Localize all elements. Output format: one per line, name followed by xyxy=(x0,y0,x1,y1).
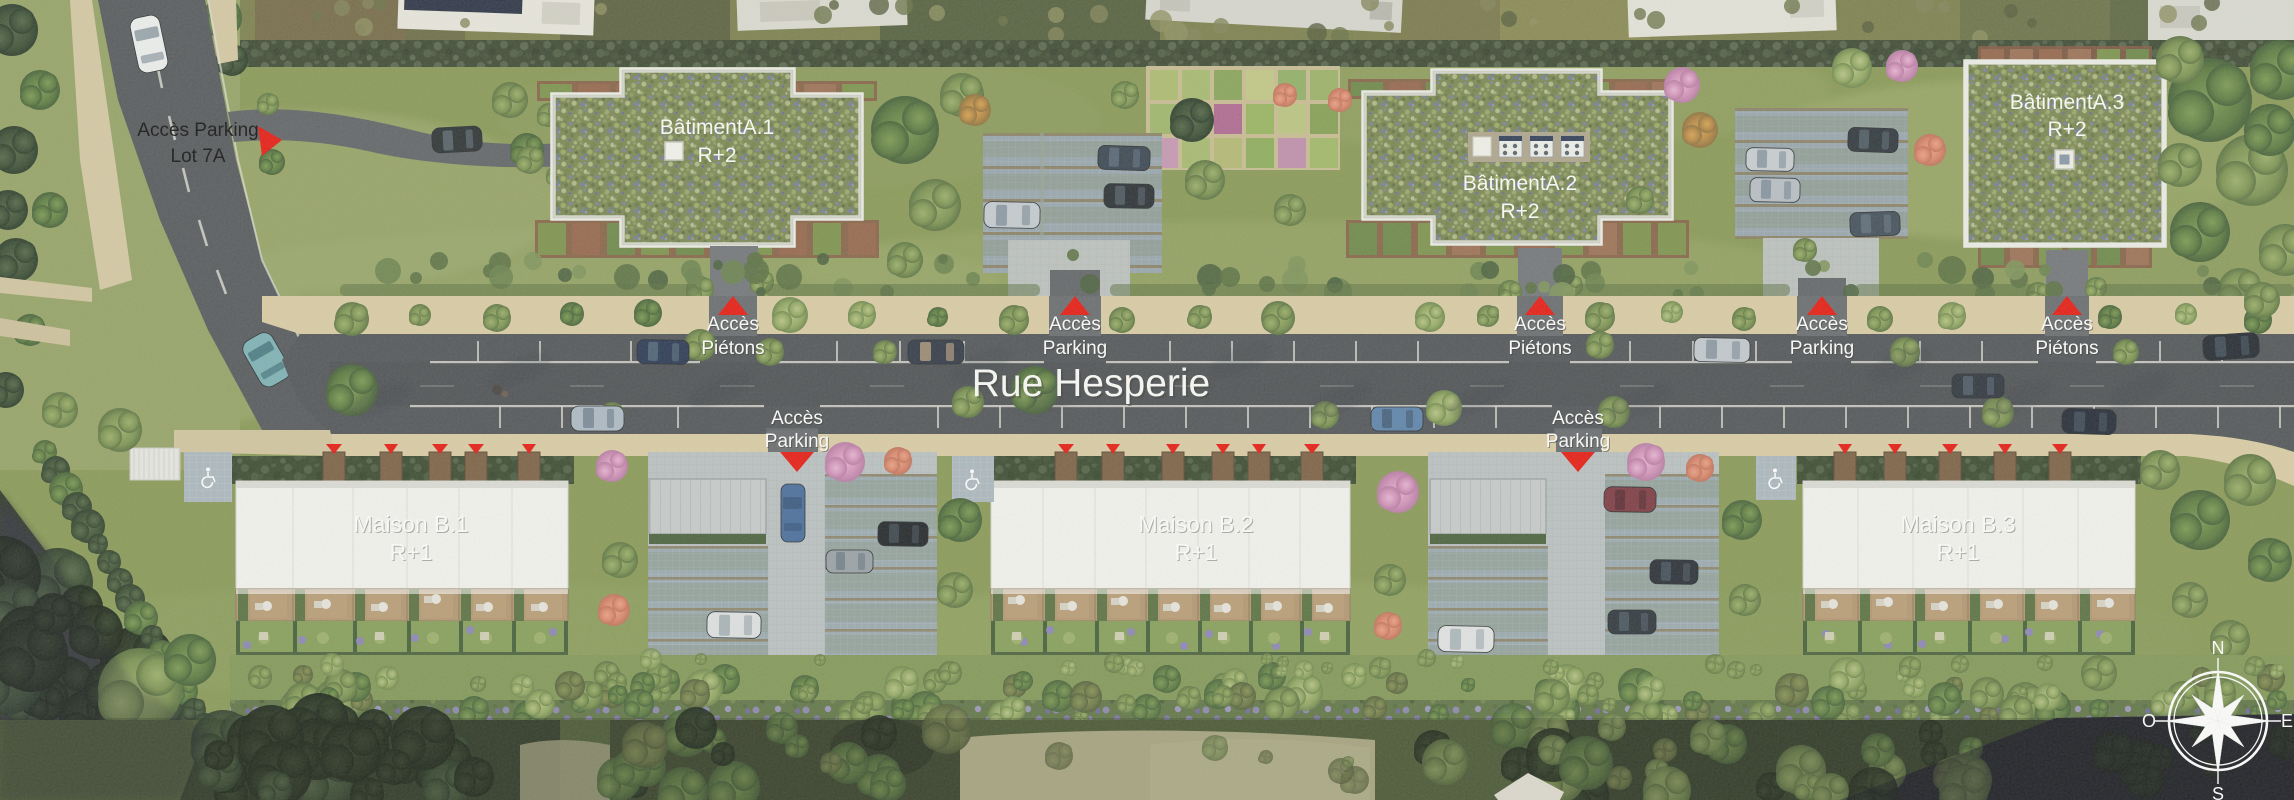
svg-text:Parking: Parking xyxy=(1043,338,1107,359)
svg-text:O: O xyxy=(2142,711,2156,731)
svg-text:Maison B.1: Maison B.1 xyxy=(353,511,468,537)
svg-text:Accès: Accès xyxy=(707,314,759,335)
svg-text:R+2: R+2 xyxy=(2047,118,2086,141)
svg-text:BâtimentA.1: BâtimentA.1 xyxy=(660,116,774,139)
svg-text:R+1: R+1 xyxy=(1175,539,1218,565)
svg-text:Lot 7A: Lot 7A xyxy=(171,146,226,167)
svg-text:Parking: Parking xyxy=(1546,431,1610,452)
svg-text:Piétons: Piétons xyxy=(1508,338,1571,359)
svg-text:Parking: Parking xyxy=(765,431,829,452)
svg-text:Parking: Parking xyxy=(1790,338,1854,359)
svg-text:Piétons: Piétons xyxy=(2035,338,2098,359)
svg-text:R+1: R+1 xyxy=(1937,539,1980,565)
svg-text:Rue Hesperie: Rue Hesperie xyxy=(972,362,1210,405)
svg-text:BâtimentA.2: BâtimentA.2 xyxy=(1463,172,1577,195)
svg-text:R+1: R+1 xyxy=(390,539,433,565)
svg-text:R+2: R+2 xyxy=(1500,200,1539,223)
svg-text:Maison B.3: Maison B.3 xyxy=(1900,511,2015,537)
svg-text:Accès: Accès xyxy=(1552,408,1604,429)
svg-text:N: N xyxy=(2212,638,2225,658)
svg-text:Accès: Accès xyxy=(1514,314,1566,335)
svg-text:E: E xyxy=(2281,711,2293,731)
svg-text:S: S xyxy=(2212,784,2224,800)
svg-text:BâtimentA.3: BâtimentA.3 xyxy=(2010,91,2124,114)
svg-text:Accès: Accès xyxy=(771,408,823,429)
svg-text:Piétons: Piétons xyxy=(701,338,764,359)
svg-text:Accès Parking: Accès Parking xyxy=(137,120,258,141)
svg-text:Accès: Accès xyxy=(1049,314,1101,335)
svg-text:Accès: Accès xyxy=(1796,314,1848,335)
svg-text:Maison B.2: Maison B.2 xyxy=(1138,511,1253,537)
svg-text:R+2: R+2 xyxy=(697,144,736,167)
svg-text:Accès: Accès xyxy=(2041,314,2093,335)
